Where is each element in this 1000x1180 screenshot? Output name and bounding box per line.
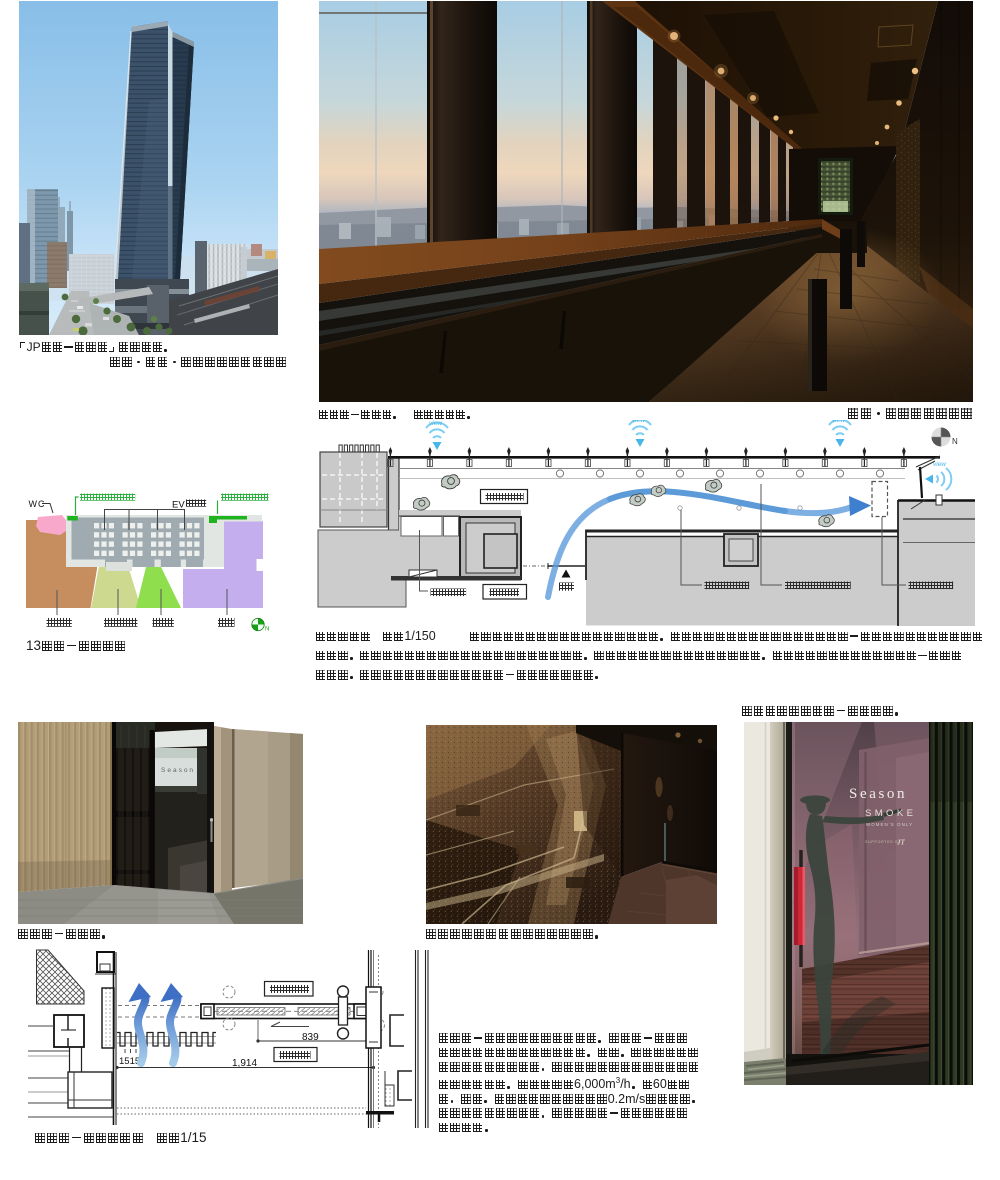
svg-text:view: view: [832, 420, 846, 424]
svg-text:1515: 1515: [119, 1056, 140, 1067]
svg-text:EV: EV: [172, 500, 185, 511]
svg-text:839: 839: [302, 1032, 319, 1043]
svg-text:view: view: [429, 420, 443, 427]
svg-text:N: N: [952, 437, 958, 446]
svg-text:view: view: [933, 461, 947, 468]
svg-text:view: view: [632, 420, 646, 424]
svg-text:Season: Season: [161, 767, 195, 774]
svg-text:Season: Season: [849, 786, 907, 802]
svg-text:JT: JT: [896, 839, 906, 847]
svg-text:SMOKE: SMOKE: [865, 808, 916, 819]
svg-text:1,914: 1,914: [232, 1058, 257, 1069]
svg-text:WOMEN'S ONLY: WOMEN'S ONLY: [866, 822, 913, 827]
svg-text:N: N: [265, 627, 269, 633]
